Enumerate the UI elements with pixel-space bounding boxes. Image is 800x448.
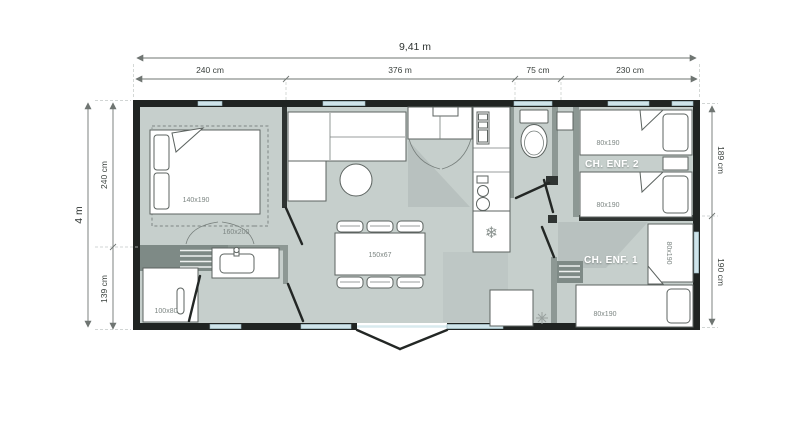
- snowflake-icon: ❄: [485, 223, 498, 242]
- window-kids1-right: [694, 232, 698, 273]
- wc: [520, 110, 548, 158]
- window-wc-top: [514, 101, 552, 105]
- bed-size-label: 140x190: [183, 197, 210, 204]
- window-bedroom-top: [198, 101, 222, 105]
- wall-bedroom-living: [282, 107, 287, 208]
- window-living-bottom: [301, 324, 351, 328]
- appliance: [479, 122, 488, 128]
- bed-size-label: 80x190: [594, 311, 617, 318]
- floorplan-svg: 140x190 160x200 100x80 150x67: [0, 0, 800, 448]
- floorplan-canvas: 140x190 160x200 100x80 150x67: [0, 0, 800, 448]
- sink-bowl: [477, 198, 490, 211]
- dim-top-seg-4: 230 cm: [616, 65, 644, 75]
- sofa: [288, 112, 406, 161]
- wall-stub-kids1: [548, 215, 557, 223]
- pillow: [663, 114, 688, 151]
- toilet-tank: [520, 110, 548, 123]
- dim-right-seg-1: 189 cm: [716, 146, 726, 174]
- room-name-label: CH. ENF. 1: [584, 255, 638, 266]
- window-living-top: [323, 101, 365, 105]
- kids-room-2: 80x190 80x190 CH. ENF. 2: [580, 110, 692, 217]
- pillow: [154, 173, 169, 209]
- entry-door-leaf: [357, 330, 400, 349]
- coffee-table: [340, 164, 372, 196]
- bed-size-label: 80x190: [597, 202, 620, 209]
- sink: [220, 254, 254, 273]
- dim-left-total: 4 m: [73, 206, 85, 224]
- window-kids2-top: [608, 101, 649, 105]
- dim-right-seg-2: 190 cm: [716, 258, 726, 286]
- wall-hall-kids2: [573, 107, 579, 217]
- dim-top-total: 9,41 m: [399, 41, 431, 53]
- dim-top-seg-1: 240 cm: [196, 65, 224, 75]
- dim-top-seg-2: 376 m: [388, 65, 412, 75]
- wall-bathroom-living: [283, 250, 288, 284]
- entry-cabinet: [490, 290, 533, 326]
- appliance: [479, 114, 488, 120]
- pillow: [154, 135, 169, 170]
- hall-shelf: [557, 112, 573, 130]
- pillow: [667, 289, 690, 323]
- dim-top-seg-3: 75 cm: [526, 65, 549, 75]
- wall-kids1-left: [551, 257, 557, 323]
- bed-option-label: 160x200: [223, 229, 250, 236]
- tap-head: [234, 247, 239, 252]
- dim-left-seg-2: 139 cm: [99, 275, 109, 303]
- room-name-label: CH. ENF. 2: [585, 159, 639, 170]
- sofa-chaise: [288, 161, 326, 201]
- window-kids2-corner: [672, 101, 693, 105]
- cupboard-handle: [433, 107, 458, 116]
- nightstand: [663, 157, 688, 170]
- shower-handle: [177, 288, 184, 314]
- kitchen: ❄: [473, 107, 510, 252]
- table-size-label: 150x67: [369, 252, 392, 259]
- sink-bowl: [478, 186, 489, 197]
- soap-dish: [477, 176, 488, 183]
- dim-left-seg-1: 240 cm: [99, 161, 109, 189]
- window-bathroom-bottom: [210, 324, 241, 328]
- pillow: [663, 176, 688, 213]
- appliance: [479, 130, 488, 142]
- entry-door-leaf: [400, 330, 447, 349]
- bathroom-counter: [140, 245, 177, 271]
- bed-size-label: 80x190: [665, 242, 672, 265]
- shower-size-label: 100x80: [155, 308, 178, 315]
- bed-size-label: 80x190: [597, 140, 620, 147]
